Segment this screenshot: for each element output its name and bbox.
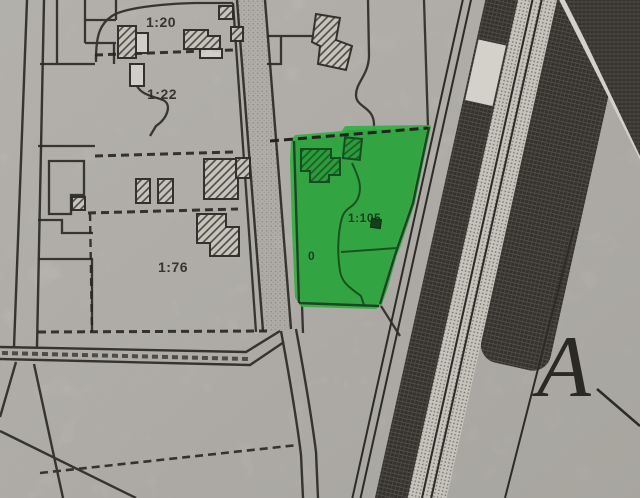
scanned-map-page: 1:20 1:22 1:76 1:105 0 A — [0, 0, 640, 498]
building-hatched — [236, 158, 250, 178]
building-hatched — [231, 27, 243, 41]
building-hatched — [72, 197, 85, 210]
parcel-label-1-76: 1:76 — [158, 259, 188, 275]
parcel-label-1-105: 1:105 — [348, 211, 381, 225]
cadastral-map-svg: 1:20 1:22 1:76 1:105 0 A — [0, 0, 640, 498]
parcel-label-1-22: 1:22 — [147, 86, 177, 102]
building-outline — [130, 64, 144, 86]
building-hatched — [118, 26, 136, 58]
building-hatched — [158, 179, 173, 203]
boundary-line — [302, 305, 303, 333]
building-hatched — [136, 179, 150, 203]
building-annex — [136, 33, 148, 53]
parcel-label-1-20: 1:20 — [146, 14, 176, 30]
building-annex — [200, 49, 222, 58]
building-hatched — [219, 6, 233, 19]
building-hatched-green — [343, 137, 362, 160]
annotation-letter-a: A — [532, 319, 592, 416]
building-hatched — [204, 159, 238, 199]
parcel-label-0: 0 — [308, 249, 315, 263]
